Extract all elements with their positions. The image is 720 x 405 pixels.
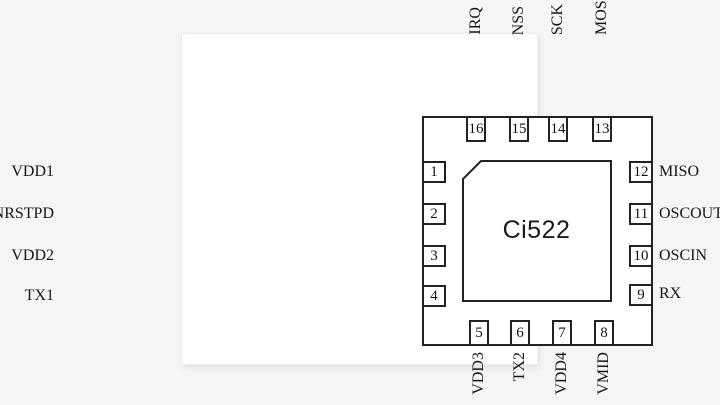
pin-label-oscout: OSCOUT bbox=[659, 204, 720, 224]
pin-label-oscin: OSCIN bbox=[659, 246, 707, 266]
page-background: Ci522 16 15 14 13 5 6 7 8 1 2 3 4 12 11 … bbox=[0, 0, 720, 405]
pin-label-vdd3: VDD3 bbox=[469, 352, 489, 395]
pin-box-16: 16 bbox=[466, 116, 486, 142]
pinout-diagram-card: Ci522 16 15 14 13 5 6 7 8 1 2 3 4 12 11 … bbox=[181, 33, 538, 365]
pin-box-13: 13 bbox=[592, 116, 612, 142]
pin-label-vdd2: VDD2 bbox=[11, 246, 54, 266]
pin-box-2: 2 bbox=[422, 203, 446, 225]
pin-box-11: 11 bbox=[629, 203, 653, 225]
pin-label-vmid: VMID bbox=[594, 352, 614, 395]
pin-label-irq: IRQ bbox=[466, 7, 486, 35]
pin-box-14: 14 bbox=[548, 116, 568, 142]
pin-label-rx: RX bbox=[659, 284, 681, 304]
pin-label-mosi: MOSI bbox=[592, 0, 612, 35]
pin-box-4: 4 bbox=[422, 285, 446, 307]
pin-label-tx2: TX2 bbox=[510, 352, 530, 381]
pin-box-9: 9 bbox=[629, 284, 653, 306]
pin-label-nrstpd: NRSTPD bbox=[0, 204, 54, 224]
pin-box-8: 8 bbox=[594, 320, 614, 346]
pin-box-1: 1 bbox=[422, 161, 446, 183]
pin-box-15: 15 bbox=[509, 116, 529, 142]
pin-box-3: 3 bbox=[422, 245, 446, 267]
pin-label-nss: NSS bbox=[509, 6, 529, 35]
pin-label-sck: SCK bbox=[548, 4, 568, 35]
pin-box-5: 5 bbox=[469, 320, 489, 346]
pin-label-tx1: TX1 bbox=[25, 286, 54, 306]
pin-box-12: 12 bbox=[629, 161, 653, 183]
chip-name-label: Ci522 bbox=[463, 161, 610, 300]
pin-box-6: 6 bbox=[510, 320, 530, 346]
pin-box-10: 10 bbox=[629, 245, 653, 267]
pin-label-vdd4: VDD4 bbox=[552, 352, 572, 395]
pin-label-vdd1: VDD1 bbox=[11, 162, 54, 182]
pin-label-miso: MISO bbox=[659, 162, 699, 182]
pin-box-7: 7 bbox=[552, 320, 572, 346]
